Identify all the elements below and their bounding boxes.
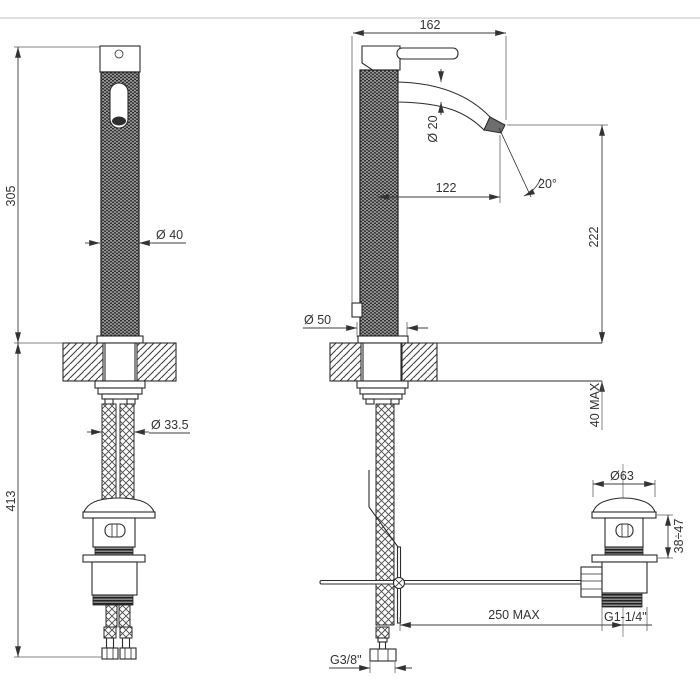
hose-fittings-front [102, 605, 136, 659]
dim-spout-angle: 20° [499, 128, 557, 197]
supply-hose-front-right [120, 404, 134, 499]
dim-hole-diameter-label: Ø 33.5 [151, 418, 189, 432]
rod-gland [581, 567, 602, 597]
dim-waste-cap-label: Ø63 [610, 469, 634, 483]
dim-162-label: 162 [420, 18, 441, 32]
fixing-kit-front [95, 381, 145, 404]
drain-thread-text: G1-1/4" [604, 610, 647, 624]
handle-cap-side [362, 46, 400, 71]
faucet-dimension-drawing: 305 413 Ø 40 Ø 33.5 [0, 0, 700, 700]
dim-spout-height: 222 [507, 125, 608, 343]
base-flange-front [97, 336, 143, 343]
rear-tab [352, 303, 362, 317]
supply-hose-side [376, 404, 394, 625]
spout-outlet-hole [112, 117, 126, 126]
dim-spout-angle-label: 20° [538, 177, 557, 191]
dim-waste-height-range: 38÷47 [657, 515, 686, 558]
fixing-kit-side [357, 381, 408, 404]
handle-lever [397, 48, 458, 59]
dim-413-label: 413 [4, 491, 18, 512]
pop-up-rod [320, 470, 584, 623]
dim-spout-diameter-label: Ø 20 [426, 115, 440, 142]
dim-base-diameter-label: Ø 50 [304, 313, 331, 327]
spout-side [398, 82, 490, 130]
deck-hatch-right [137, 343, 176, 381]
hose-fitting-side [370, 627, 396, 661]
side-view: 162 Ø 20 122 20° 222 [303, 18, 686, 673]
dim-waste-height-label: 38÷47 [672, 519, 686, 554]
horizontal-rod [320, 581, 584, 585]
pop-up-waste-front [83, 498, 155, 605]
dim-rod-reach-label: 250 MAX [488, 608, 540, 622]
dim-122-label: 122 [436, 181, 457, 195]
supply-thread-text: G3/8" [330, 653, 362, 667]
dim-222-label: 222 [587, 227, 601, 248]
label-drain-thread: G1-1/4" [602, 607, 647, 631]
supply-hose-front-left [102, 404, 116, 499]
front-view: 305 413 Ø 40 Ø 33.5 [4, 46, 190, 659]
dim-length-below-deck: 413 [4, 343, 102, 657]
dim-305-label: 305 [4, 186, 18, 207]
dim-body-diameter-label: Ø 40 [156, 228, 183, 242]
dim-height-above-deck: 305 [4, 47, 100, 343]
knurled-body-side [360, 70, 398, 336]
dim-deck-thickness-label: 40 MAX [588, 382, 602, 427]
deck-side [330, 343, 602, 381]
dim-deck-thickness: 40 MAX [588, 330, 602, 430]
deck-hatch-left [63, 343, 103, 381]
dim-waste-cap-diameter: Ø63 [593, 469, 655, 497]
shank-front [105, 343, 135, 381]
base-flange-side [358, 336, 408, 343]
technical-drawing-sheet: 305 413 Ø 40 Ø 33.5 [0, 0, 700, 700]
